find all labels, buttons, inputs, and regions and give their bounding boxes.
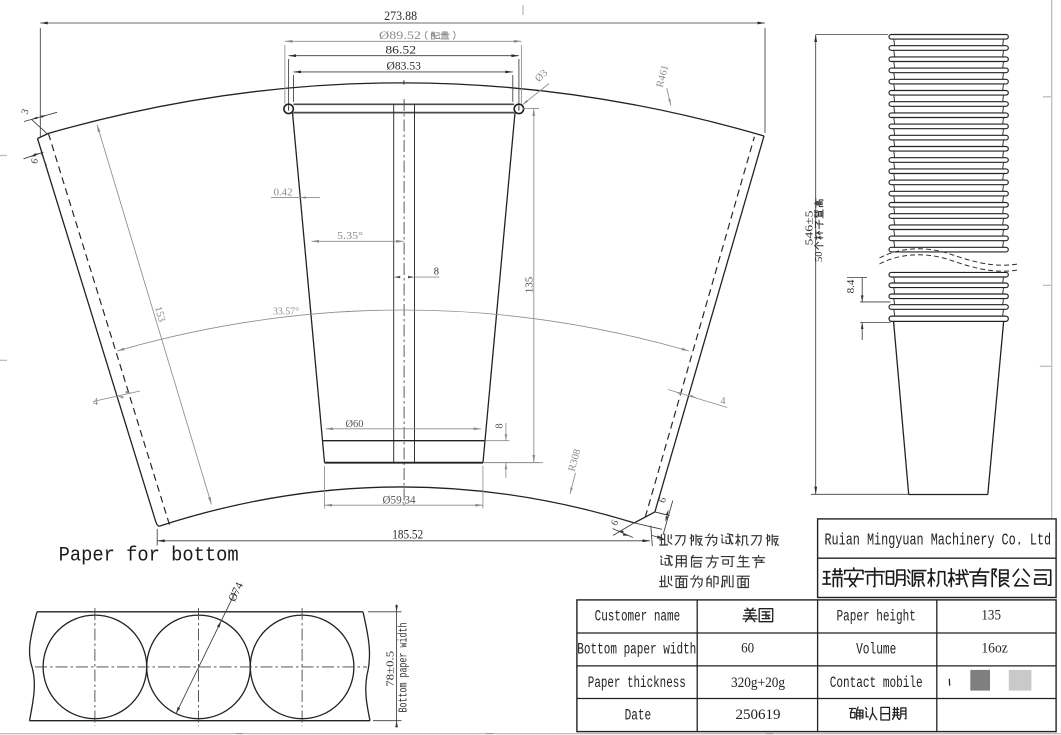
svg-text:8.4: 8.4 [845, 279, 857, 293]
svg-text:Paper for bottom: Paper for bottom [59, 545, 239, 568]
svg-text:Contact mobile: Contact mobile [830, 674, 923, 692]
svg-text:60: 60 [741, 641, 754, 657]
svg-text:Volume: Volume [856, 640, 896, 658]
svg-text:33.57°: 33.57° [273, 307, 299, 318]
svg-text:546±5: 546±5 [804, 210, 816, 246]
svg-text:86.52: 86.52 [385, 43, 416, 57]
svg-text:50: 50 [814, 252, 825, 263]
svg-text:273.88: 273.88 [384, 9, 417, 23]
svg-text:135: 135 [981, 608, 1001, 624]
svg-text:0.42: 0.42 [274, 188, 293, 199]
svg-text:Bottom paper width: Bottom paper width [398, 623, 411, 713]
svg-text:78±0.5: 78±0.5 [384, 650, 396, 687]
svg-text:Ø83.53: Ø83.53 [387, 59, 421, 73]
svg-text:4: 4 [93, 397, 98, 408]
svg-text:Date: Date [625, 706, 652, 724]
svg-text:320g+20g: 320g+20g [731, 675, 785, 691]
svg-text:4: 4 [721, 396, 726, 407]
svg-text:8: 8 [434, 267, 439, 278]
svg-text:16oz: 16oz [981, 641, 1008, 657]
svg-text:Ø59.34: Ø59.34 [383, 495, 416, 507]
svg-text:Ruian Mingyuan Machinery Co. L: Ruian Mingyuan Machinery Co. Ltd [824, 532, 1051, 551]
svg-text:8: 8 [495, 423, 506, 428]
svg-text:135: 135 [523, 276, 535, 293]
svg-text:185.52: 185.52 [392, 528, 423, 542]
svg-text:Paper height: Paper height [837, 607, 916, 625]
svg-text:Bottom paper width: Bottom paper width [577, 640, 696, 658]
svg-text:Customer name: Customer name [595, 607, 681, 625]
svg-text:Paper thickness: Paper thickness [588, 674, 686, 692]
svg-text:5.35°: 5.35° [337, 231, 363, 242]
svg-text:250619: 250619 [736, 707, 781, 723]
svg-text:Ø89.52: Ø89.52 [379, 30, 421, 42]
svg-text:Ø60: Ø60 [346, 418, 364, 430]
